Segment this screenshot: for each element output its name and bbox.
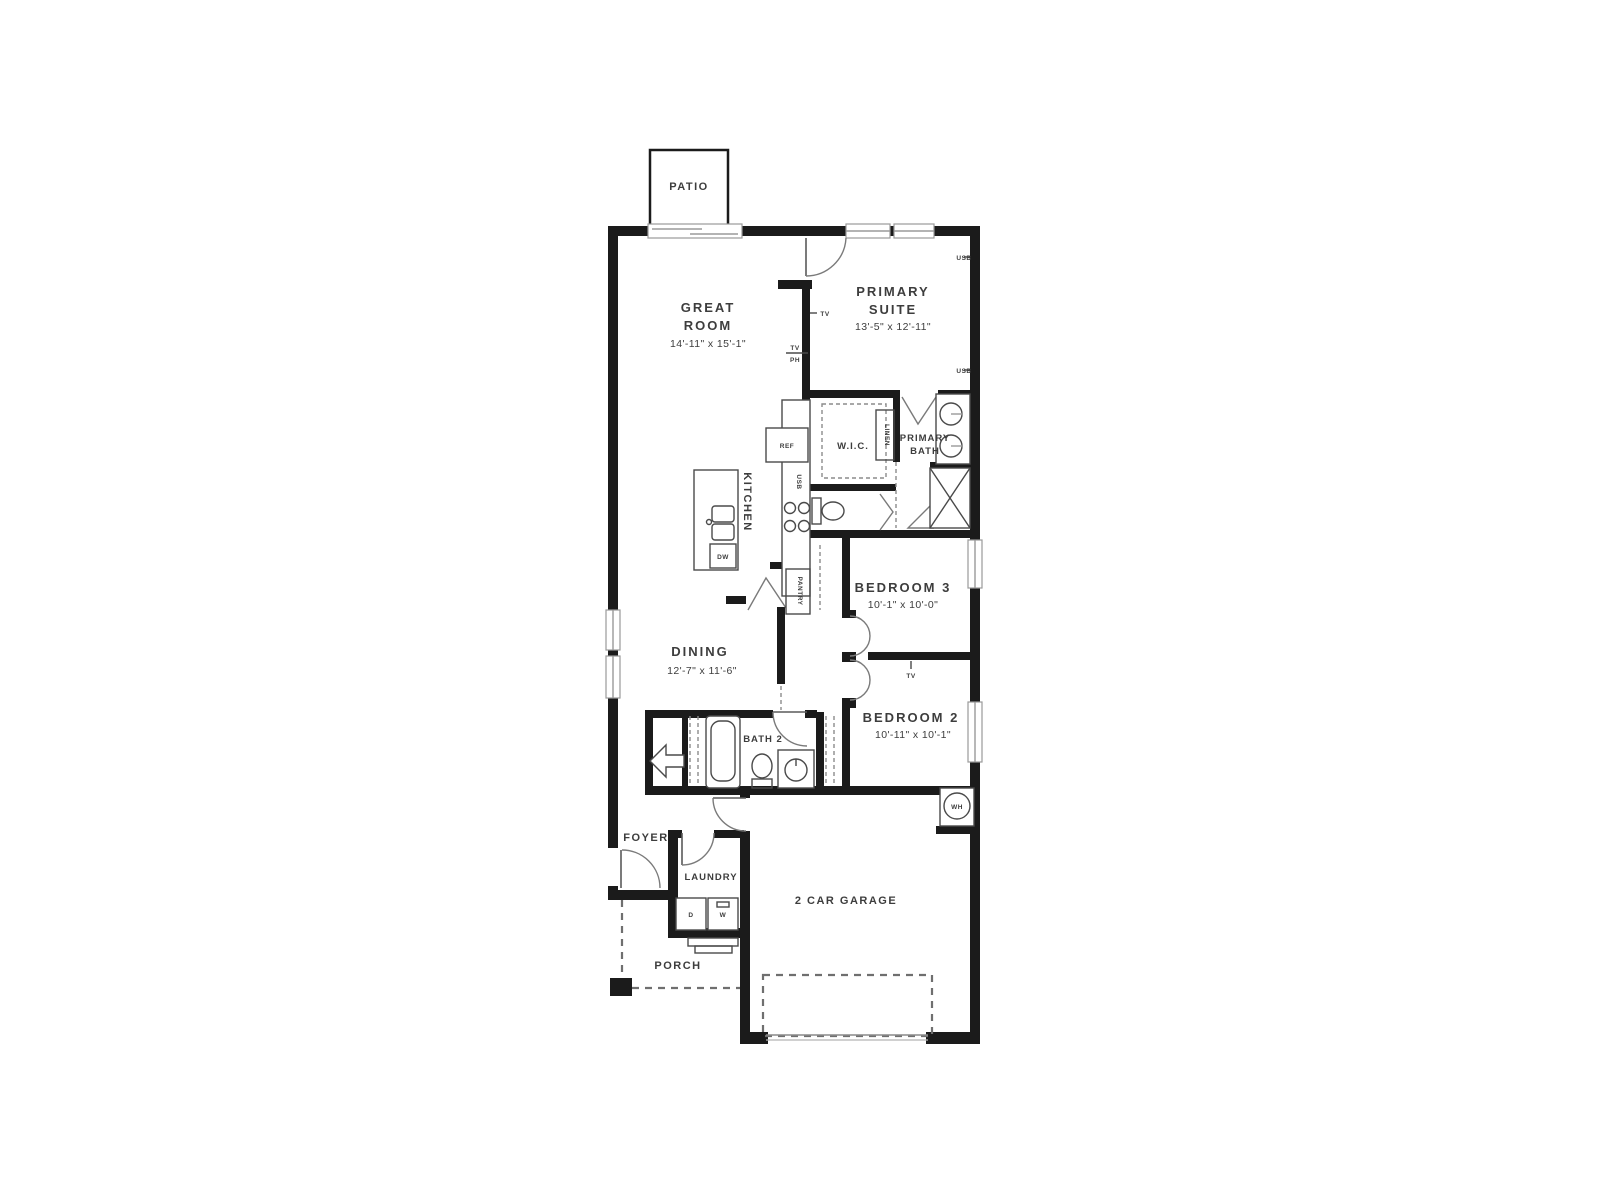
entry-step (688, 938, 738, 953)
garage-label: 2 CAR GARAGE (795, 895, 897, 907)
bedroom3-label: BEDROOM 3 (855, 580, 952, 595)
primary-suite-door (806, 238, 846, 276)
bedroom2-dims: 10'-11" x 10'-1" (875, 729, 951, 741)
window (606, 656, 620, 698)
foyer-label: FOYER (623, 832, 668, 844)
usb-tag: USB (956, 255, 971, 262)
primary-suite-label: PRIMARY (856, 284, 929, 299)
primary-bath-fixtures (812, 394, 970, 528)
toilet-room-door (880, 494, 893, 530)
great-room-label: ROOM (684, 318, 732, 333)
dryer-tag: D (688, 912, 693, 919)
porch-label: PORCH (654, 960, 701, 972)
usb-tag: USB (956, 368, 971, 375)
window (846, 224, 890, 238)
toilet-tank (812, 498, 821, 524)
tv-tag: TV (906, 673, 915, 680)
ph-tag: PH (790, 357, 800, 364)
double-vanity (936, 394, 970, 464)
bedroom2-door (850, 660, 870, 700)
laundry-fixtures (676, 788, 974, 930)
tv-tag: TV (790, 345, 799, 352)
bedroom3-door (850, 616, 870, 656)
window (894, 224, 934, 238)
kitchen-island (694, 470, 738, 570)
window (968, 540, 982, 588)
primary-suite-dims: 13'-5" x 12'-11" (855, 321, 931, 333)
patio-label: PATIO (669, 181, 708, 193)
vanity (778, 750, 814, 788)
pantry-door (748, 578, 786, 610)
dining-label: DINING (671, 644, 729, 659)
water-heater-tag: WH (951, 804, 963, 811)
pantry-label: PANTRY (796, 577, 803, 606)
great-room-label: GREAT (681, 300, 736, 315)
usb-tag: USB (795, 474, 802, 489)
primary-suite-label: SUITE (869, 302, 917, 317)
porch-post (610, 978, 632, 996)
bedroom2-label: BEDROOM 2 (863, 710, 960, 725)
laundry-door (682, 833, 714, 865)
garage-door-apron (763, 975, 932, 1036)
dw-tag: DW (717, 554, 729, 561)
floor-plan-page: PATIO (0, 0, 1600, 1200)
primary-bath-entry-door (902, 397, 936, 424)
linen-label: LINEN (883, 424, 890, 446)
bath2-label: BATH 2 (743, 734, 783, 745)
wic-label: W.I.C. (837, 441, 869, 452)
garage-door (766, 1035, 928, 1040)
garage-entry-door (713, 798, 746, 831)
front-door (621, 850, 660, 888)
tv-tag: TV (820, 311, 829, 318)
patio: PATIO (650, 150, 728, 230)
window (606, 610, 620, 650)
primary-bath-label: BATH (910, 446, 940, 457)
floor-plan-drawing: PATIO (0, 0, 1600, 1200)
ref-tag: REF (780, 443, 795, 450)
primary-bath-label: PRIMARY (900, 433, 950, 444)
toilet-bowl (822, 502, 844, 520)
bath2-fixtures (650, 716, 814, 788)
bedroom3-dims: 10'-1" x 10'-0" (868, 599, 939, 611)
kitchen-label: KITCHEN (741, 472, 753, 531)
laundry-label: LAUNDRY (684, 872, 737, 883)
dining-dims: 12'-7" x 11'-6" (667, 665, 737, 677)
window (968, 702, 982, 762)
great-room-dims: 14'-11" x 15'-1" (670, 338, 746, 350)
patio-slider-door (648, 224, 742, 238)
closet-arrow (650, 745, 684, 777)
washer-tag: W (720, 912, 727, 919)
toilet-bowl (752, 754, 772, 778)
